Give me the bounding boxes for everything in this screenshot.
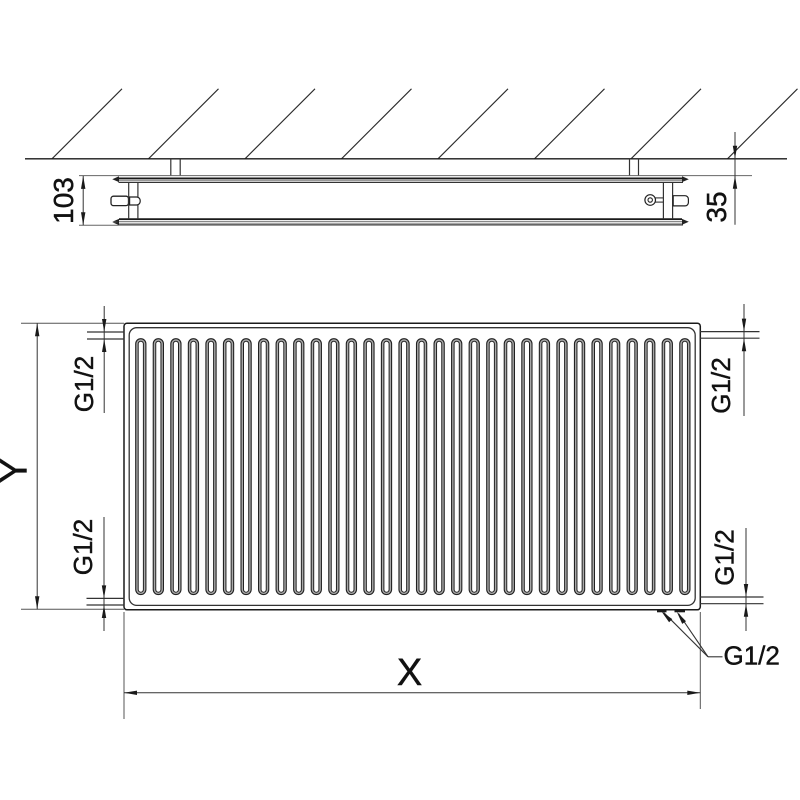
svg-text:Y: Y bbox=[0, 458, 36, 483]
svg-text:G1/2: G1/2 bbox=[68, 519, 98, 575]
svg-text:35: 35 bbox=[701, 191, 732, 222]
svg-text:X: X bbox=[397, 652, 422, 694]
svg-text:103: 103 bbox=[48, 177, 79, 224]
svg-text:G1/2: G1/2 bbox=[710, 529, 740, 585]
svg-text:G1/2: G1/2 bbox=[69, 356, 99, 412]
svg-text:G1/2: G1/2 bbox=[706, 357, 736, 413]
svg-text:G1/2: G1/2 bbox=[724, 641, 780, 671]
